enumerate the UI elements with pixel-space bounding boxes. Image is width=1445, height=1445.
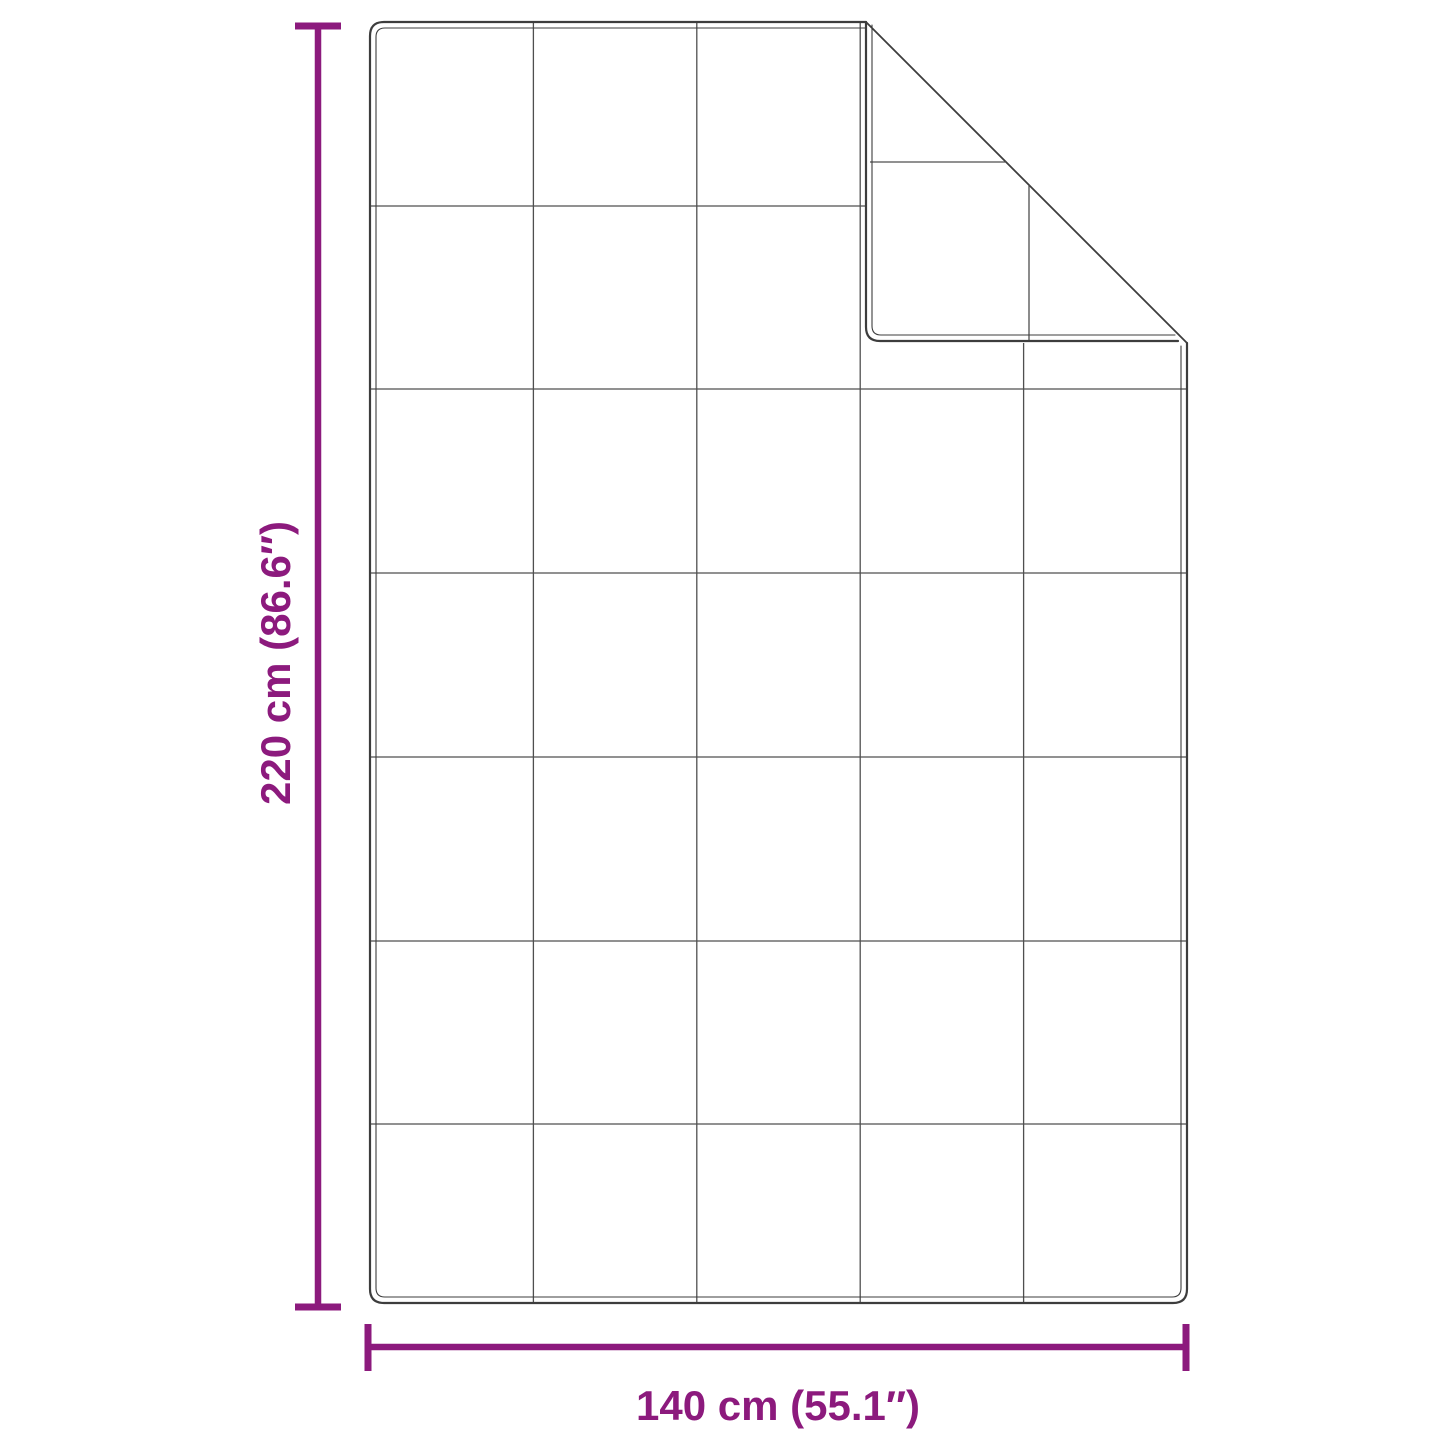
blanket-body-fill <box>370 22 1187 1303</box>
width-dimension: 140 cm (55.1″) <box>368 1324 1186 1429</box>
dimension-diagram-canvas: 220 cm (86.6″) 140 cm (55.1″) <box>0 0 1445 1445</box>
blanket <box>370 22 1187 1303</box>
blanket-dimension-diagram: 220 cm (86.6″) 140 cm (55.1″) <box>0 0 1445 1445</box>
height-dimension-label: 220 cm (86.6″) <box>252 521 299 805</box>
folded-corner <box>866 22 1187 343</box>
width-dimension-label: 140 cm (55.1″) <box>636 1382 920 1429</box>
height-dimension: 220 cm (86.6″) <box>252 26 341 1307</box>
